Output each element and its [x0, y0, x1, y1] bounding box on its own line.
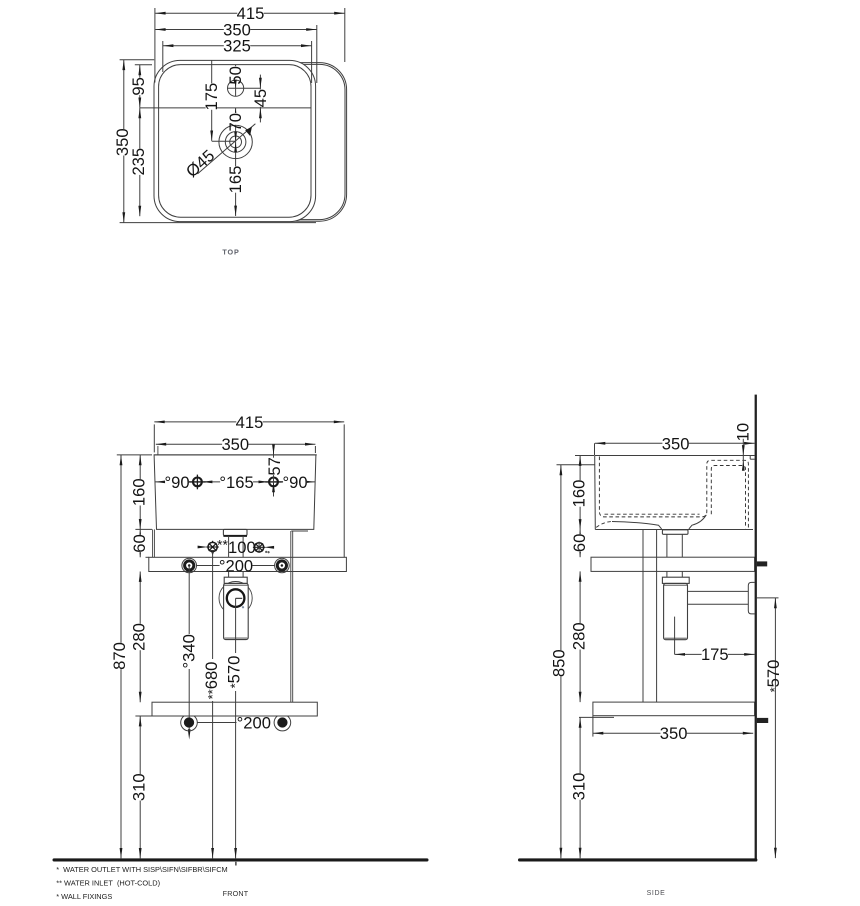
svg-text:70: 70	[226, 113, 245, 131]
svg-text:45: 45	[251, 89, 270, 107]
svg-text:* WALL FIXINGS: * WALL FIXINGS	[56, 892, 112, 901]
svg-text:°200: °200	[237, 713, 271, 732]
svg-text:TOP: TOP	[222, 248, 239, 257]
svg-text:*570: *570	[224, 656, 243, 689]
svg-text:175: 175	[701, 645, 729, 664]
svg-text:310: 310	[130, 773, 149, 801]
svg-text:**: **	[217, 537, 228, 553]
svg-text:415: 415	[236, 413, 264, 432]
svg-text:FRONT: FRONT	[223, 889, 249, 898]
svg-text:350: 350	[221, 435, 249, 454]
svg-text:235: 235	[129, 148, 148, 176]
svg-text:60: 60	[130, 534, 149, 552]
svg-text:350: 350	[660, 724, 688, 743]
svg-text:280: 280	[570, 622, 589, 650]
svg-text:310: 310	[570, 773, 589, 801]
svg-text:325: 325	[223, 37, 251, 56]
svg-text:*570: *570	[764, 660, 783, 693]
svg-text:°90: °90	[164, 473, 189, 492]
svg-text:95: 95	[129, 77, 148, 95]
svg-text:** WATER INLET (HOT-COLD): ** WATER INLET (HOT-COLD)	[56, 879, 160, 888]
svg-text:57: 57	[265, 457, 284, 475]
svg-text:175: 175	[202, 83, 221, 111]
svg-text:165: 165	[226, 166, 245, 194]
svg-text:870: 870	[110, 642, 129, 670]
svg-text:850: 850	[549, 649, 568, 677]
svg-text:°165: °165	[219, 473, 253, 492]
svg-text:°340: °340	[179, 634, 198, 668]
svg-text:100: 100	[228, 538, 256, 557]
svg-text:**680: **680	[202, 662, 221, 700]
svg-text:280: 280	[130, 623, 149, 651]
svg-text:10: 10	[733, 423, 752, 441]
svg-text:°200: °200	[219, 556, 253, 575]
svg-text:60: 60	[570, 534, 589, 552]
svg-text:SIDE: SIDE	[647, 890, 666, 897]
svg-text:50: 50	[226, 66, 245, 84]
svg-text:160: 160	[570, 480, 589, 508]
svg-text:°90: °90	[282, 473, 307, 492]
svg-text:* WATER OUTLET WITH SISP\SIFN: * WATER OUTLET WITH SISP\SIFN\SIFBR\SIFC…	[56, 865, 228, 874]
svg-text:350: 350	[662, 434, 690, 453]
svg-text:160: 160	[130, 478, 149, 506]
